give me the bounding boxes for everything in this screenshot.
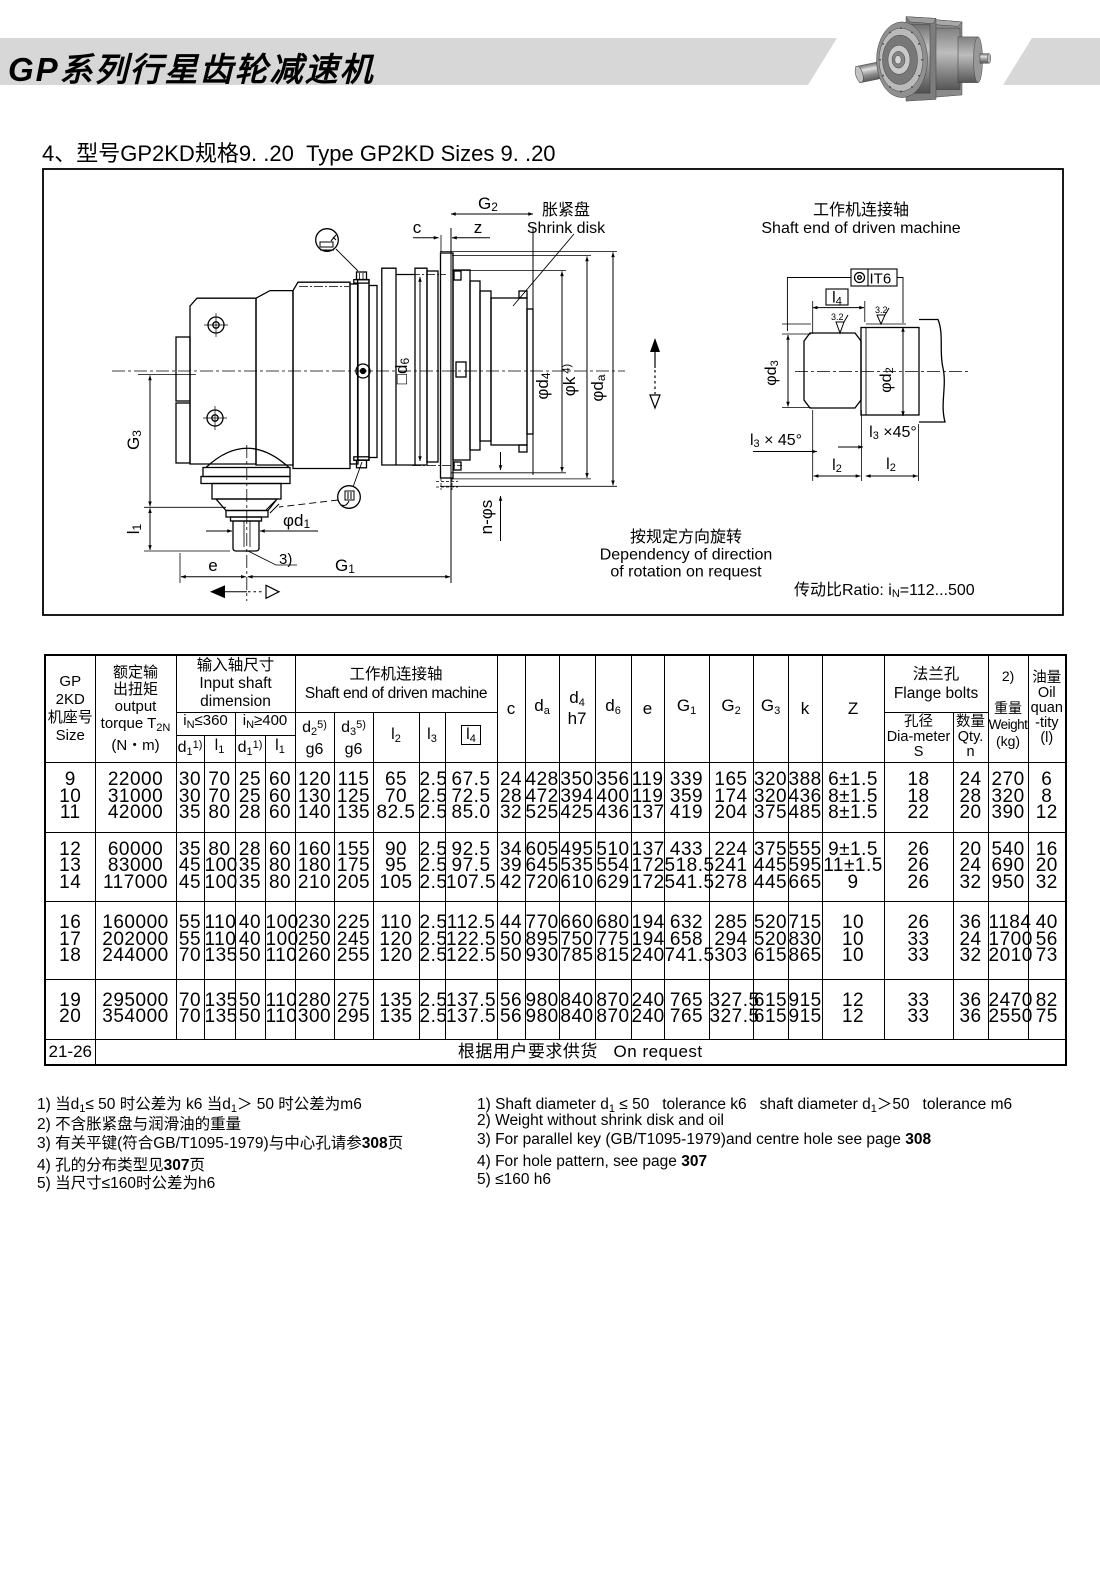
svg-text:φd3: φd3 — [763, 360, 781, 385]
svg-text:l4: l4 — [832, 290, 842, 308]
svg-text:l2: l2 — [886, 456, 896, 474]
svg-text:l3 × 45°: l3 × 45° — [750, 432, 802, 450]
svg-text:胀紧盘: 胀紧盘 — [542, 200, 590, 219]
svg-text:工作机连接轴: 工作机连接轴 — [813, 201, 909, 219]
svg-text:z: z — [474, 218, 483, 237]
svg-text:φda: φda — [588, 374, 608, 401]
svg-text:c: c — [413, 218, 422, 237]
svg-text:l1: l1 — [124, 523, 144, 534]
svg-text:Shrink disk: Shrink disk — [527, 220, 606, 237]
svg-text:e: e — [208, 556, 217, 575]
svg-text:G1: G1 — [335, 556, 355, 576]
svg-text:IT6: IT6 — [870, 271, 892, 288]
svg-text:传动比Ratio: iN=112...500: 传动比Ratio: iN=112...500 — [794, 581, 975, 600]
svg-text:Shaft end of driven machine: Shaft end of driven machine — [761, 220, 960, 237]
svg-text:φd1: φd1 — [283, 511, 310, 531]
svg-text:φk 4): φk 4) — [560, 364, 579, 396]
svg-text:按规定方向旋转: 按规定方向旋转 — [630, 528, 742, 546]
svg-text:Dependency of direction: Dependency of direction — [600, 547, 773, 564]
svg-text:l3 ×45°: l3 ×45° — [869, 424, 917, 442]
svg-text:□d6: □d6 — [392, 357, 412, 384]
svg-text:φd4: φd4 — [533, 372, 553, 399]
svg-text:3): 3) — [279, 551, 292, 568]
svg-text:n-φs: n-φs — [477, 500, 496, 535]
svg-text:φd2: φd2 — [878, 367, 896, 392]
svg-text:of rotation on request: of rotation on request — [610, 564, 762, 581]
svg-text:G2: G2 — [478, 194, 498, 214]
svg-text:l2: l2 — [832, 457, 842, 475]
svg-text:3.2: 3.2 — [831, 312, 844, 322]
svg-text:G3: G3 — [124, 430, 144, 450]
svg-text:3.2: 3.2 — [875, 305, 888, 315]
